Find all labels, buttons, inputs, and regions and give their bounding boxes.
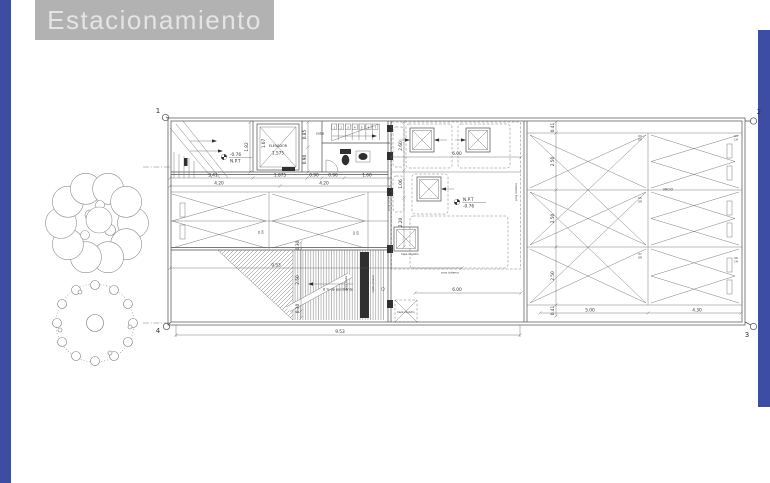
- dim-label: 0.30: [295, 303, 301, 313]
- parking-block-right: VACIO 03 GR 05 GR 07 GR 04 CH 06 CH: [527, 133, 742, 305]
- ramp: 8 % de pendiente proy. trabe rejilla plu…: [218, 251, 385, 321]
- stall-type: CH: [734, 138, 738, 142]
- registry-cover-5: tapa registro: [395, 300, 417, 322]
- step-number: 6: [368, 125, 370, 129]
- beam-projection-label: proy. trabe: [344, 275, 348, 290]
- dim-label: 9.53: [271, 262, 281, 268]
- dim-label: 6.00: [452, 151, 462, 157]
- dim-label: 2.50: [550, 213, 556, 223]
- stall-type: GR: [638, 256, 642, 260]
- npt-court-annotation: N.P.T -0.76: [454, 197, 486, 210]
- grate-label: rejilla pluvial: [371, 275, 375, 292]
- dim-label: 5.00: [585, 307, 595, 313]
- stall-type: GR: [638, 138, 642, 142]
- stall-type: GR: [355, 231, 359, 235]
- dim-label: 0.41: [550, 122, 556, 132]
- dim-label: 2.50: [295, 275, 301, 285]
- site-tree-2: [53, 281, 138, 366]
- dim-label: 0.90: [309, 172, 319, 178]
- stall-type: CH: [734, 260, 738, 264]
- dim-label: 2.20: [398, 217, 404, 227]
- axis-markers: 1 2 3 4: [156, 107, 761, 339]
- axis-marker-1: 1: [156, 107, 160, 115]
- registry-cover-label-2: tapa registro: [397, 310, 415, 314]
- step-number: 3: [347, 125, 349, 129]
- step-number: 7: [374, 125, 376, 129]
- dim-label: 1.60: [362, 172, 372, 178]
- cistern-projection-left: proy cisterna: [387, 193, 391, 211]
- dim-label: 0.41: [550, 305, 556, 315]
- npt-entry-label: N.P.T: [230, 159, 241, 165]
- dim-label: 0.90: [302, 154, 308, 164]
- parking-stalls-left: 01 GR 02 GR: [172, 192, 368, 249]
- stair-up-label: sube: [316, 132, 324, 136]
- npt-court-value: -0.76: [463, 204, 474, 210]
- npt-entry-annotation: -0.76 N.P.T: [221, 152, 252, 165]
- dim-label: 1.82: [244, 142, 250, 152]
- ramp-slope-label: 8 % de pendiente: [323, 288, 353, 292]
- void-label: VACIO: [663, 188, 674, 192]
- bathroom: [326, 149, 370, 172]
- step-number: 4: [354, 125, 356, 129]
- axis-marker-2: 2: [757, 108, 761, 116]
- dim-label: 1.875: [274, 172, 287, 178]
- npt-court-label: N.P.T: [463, 197, 474, 203]
- step-number: 5: [361, 125, 363, 129]
- stall-type: GR: [260, 230, 264, 234]
- elevator-label: ELEVADOR: [269, 144, 288, 148]
- stair-treads: 1 2 3 4 5 6 7 sube: [316, 124, 379, 142]
- axis-lines: [143, 167, 170, 323]
- stall-type: GR: [638, 200, 642, 204]
- registry-cover-4: tapa registro: [394, 227, 419, 256]
- dim-label: 4.30: [692, 307, 702, 313]
- axis-marker-4: 4: [156, 327, 161, 335]
- dim-label: 0.30: [295, 240, 301, 250]
- elevator-size: 1.575: [272, 151, 285, 157]
- dim-label: 2.50: [550, 156, 556, 166]
- npt-entry-value: -0.76: [230, 152, 241, 158]
- axis-marker-3: 3: [745, 331, 749, 339]
- dim-label: 6.00: [452, 287, 462, 293]
- cistern-projection-bottom: proy cisterna: [441, 271, 459, 275]
- dim-label: 1.06: [398, 179, 404, 189]
- step-number: 1: [333, 125, 335, 129]
- floor-plan-drawing: -0.76 N.P.T ELEVADOR 1.575 1 2 3 4 5 6 7…: [0, 0, 770, 483]
- dim-label: 3.41: [208, 172, 218, 178]
- stair-room: [170, 121, 228, 178]
- step-number: 2: [340, 125, 342, 129]
- registry-cover-3: [417, 177, 454, 201]
- dim-label: 0.90: [328, 172, 338, 178]
- dim-label: 4.20: [214, 180, 224, 186]
- dim-label: 9.53: [335, 329, 345, 335]
- registry-cover-2: [455, 128, 490, 152]
- dim-label: 2.60: [398, 141, 404, 151]
- cistern-projection-right: proy cisterna: [514, 183, 518, 201]
- dim-label: 4.20: [319, 180, 329, 186]
- dim-label: 1.07: [261, 138, 267, 148]
- registry-cover-label: tapa registro: [401, 252, 419, 256]
- dim-label: 0.85: [302, 129, 308, 139]
- site-tree-1: [46, 173, 149, 272]
- dim-label: 2.50: [550, 271, 556, 281]
